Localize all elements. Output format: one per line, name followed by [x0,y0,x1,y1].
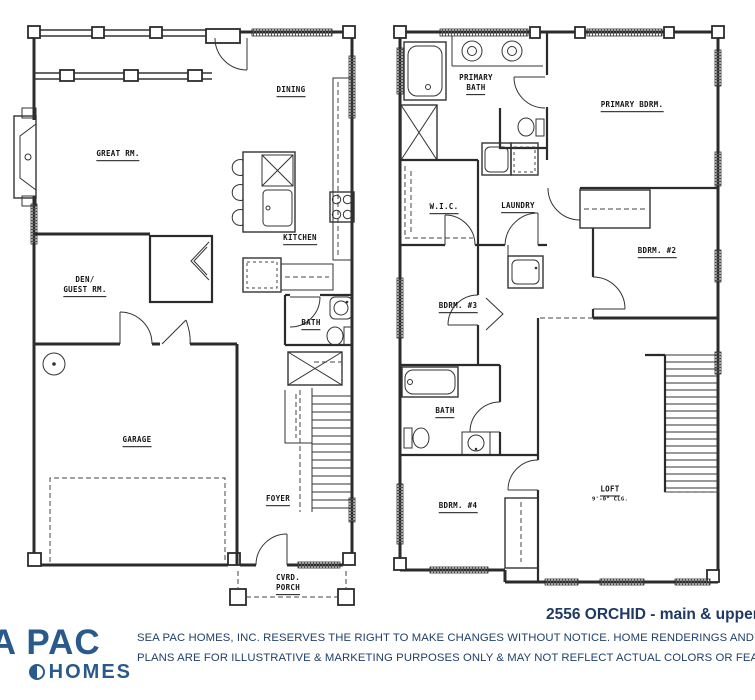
window-mullion [92,27,104,38]
window [397,278,403,338]
window [600,579,644,585]
window-mullion [664,27,674,38]
tub-icon [404,42,446,100]
range-icon [330,192,354,222]
window [31,204,37,244]
bdrm4-closet [505,498,538,568]
window-mullion [124,70,138,81]
room-label-great-rm: GREAT RM. [96,149,139,161]
kitchen-island [232,152,295,232]
sink-icon [502,41,522,61]
door-arc [505,213,538,245]
window [715,50,721,86]
seapac-homes-logo: SEA PAC HOMES [0,625,132,682]
window [440,29,528,36]
window-mullion [150,27,162,38]
window-mullion [575,27,585,38]
plan-title: 2556 ORCHID - main & upper [546,606,755,624]
window [715,152,721,186]
room-label-bath-main: BATH [301,318,320,330]
corner-block [28,26,40,38]
wall-step [206,29,240,43]
bifold-closet-doors [486,298,503,330]
room-label-bdrm3: BDRM. #3 [439,301,478,313]
hall-vanity [508,245,543,288]
room-label-primary-bdrm: PRIMARY BDRM. [601,100,664,112]
corner-block [394,558,406,570]
door-arc [593,277,625,309]
front-door-arc [256,534,287,565]
window [587,29,662,36]
window [545,579,578,585]
corner-block [343,26,355,38]
door-arc [548,188,580,220]
refrigerator-icon [243,258,281,292]
window-wall [40,30,206,36]
closet-doors [191,242,209,280]
room-label-primary-bath: PRIMARYBATH [459,73,493,95]
door-arc [514,77,545,108]
closet [150,236,212,302]
main-floor-plan [14,26,355,605]
window [252,29,332,36]
garage-door-dashed [50,478,225,562]
sink-icon [263,190,292,226]
sink-icon [330,297,352,319]
room-label-loft: LOFT9'-0" CLG. [592,484,628,503]
corner-block [712,26,724,38]
primary-bath-fixtures [401,36,547,160]
door-arc [508,460,538,490]
porch-post [230,589,246,605]
window [298,562,340,568]
window [675,579,710,585]
corner-block [343,553,355,565]
wall [500,108,547,148]
toilet-icon [404,428,412,448]
fireplace-icon [14,108,36,206]
door-arc [445,215,475,245]
door-arc [470,402,500,432]
room-label-den-guest-rm: DEN/GUEST RM. [63,275,106,297]
room-label-bdrm2: BDRM. #2 [638,246,677,258]
staircase-upper [645,355,718,492]
floor-plan-sheet: DINING GREAT RM. KITCHEN DEN/GUEST RM. B… [0,0,755,700]
window [397,48,403,94]
disclaimer-line-1: SEA PAC HOMES, INC. RESERVES THE RIGHT T… [137,632,755,644]
shower-icon [288,352,342,385]
room-label-laundry: LAUNDRY [501,201,535,213]
room-label-bath-upper: BATH [435,406,454,418]
window-mullion [60,70,74,81]
disclaimer-line-2: PLANS ARE FOR ILLUSTRATIVE & MARKETING P… [137,652,755,664]
window [397,484,403,544]
stools [232,160,243,226]
door-arc [120,312,152,344]
window [715,250,721,282]
corner-block [394,26,406,38]
room-label-dining: DINING [277,85,306,97]
porch-post [338,589,354,605]
logo-text-sea-pac: SEA PAC [0,625,132,660]
room-label-kitchen: KITCHEN [283,233,317,245]
room-label-wic: W.I.C. [430,202,459,214]
toilet-icon [536,119,544,136]
room-label-garage: GARAGE [123,435,152,447]
garage-entry-door [162,320,190,344]
tub-icon [402,367,458,397]
window [430,567,488,573]
window-mullion [530,27,540,38]
sink-icon [462,41,482,61]
staircase-main [285,388,352,512]
window [349,498,355,522]
primary-closet [580,190,650,228]
room-label-cvrd-porch: CVRD.PORCH [276,573,300,595]
logo-globe-icon [29,664,45,680]
logo-text-homes: HOMES [49,662,132,682]
corner-block [28,553,41,566]
room-label-bdrm4: BDRM. #4 [439,501,478,513]
sink-icon [508,256,543,288]
room-label-foyer: FOYER [266,494,290,506]
window-mullion [188,70,202,81]
water-heater-icon [43,353,65,375]
vanity [452,36,543,66]
